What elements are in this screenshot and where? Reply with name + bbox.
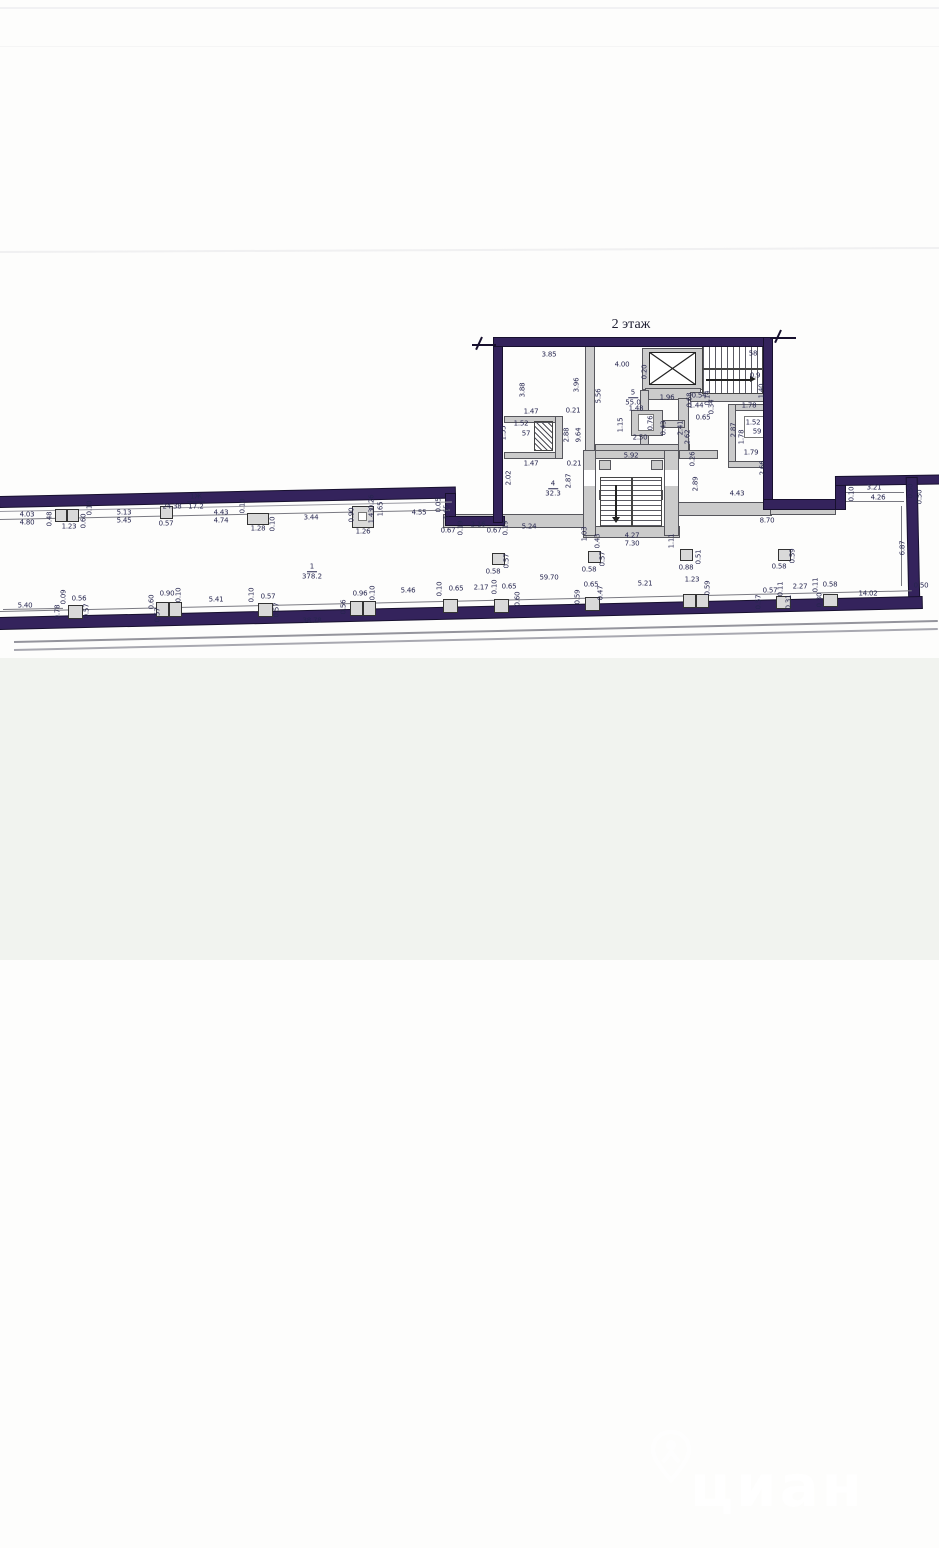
dimension-label: 1.47 xyxy=(524,409,539,416)
cian-watermark: циан xyxy=(618,1428,938,1548)
dimension-label: 5.21 xyxy=(638,581,653,588)
staircase-divider xyxy=(703,368,762,370)
dimension-label: 2.16 xyxy=(471,522,486,529)
dimension-label: 4.00 xyxy=(615,362,630,369)
dimension-label: 1.52 xyxy=(514,421,529,428)
room-number: 4 xyxy=(548,479,558,489)
dimension-label: 2.66 xyxy=(760,461,767,476)
closet-wall xyxy=(504,452,562,459)
elevator-icon xyxy=(649,352,696,385)
dimension-label: 0.09 xyxy=(61,590,68,605)
dimension-label: 0.67 xyxy=(441,528,456,535)
stair-arrow-icon xyxy=(612,517,620,523)
dimension-label: 1.96 xyxy=(660,395,675,402)
dimension-label: 59 xyxy=(753,429,762,436)
dimension-label: 0.43 xyxy=(595,534,602,549)
dimension-label: 0.10 xyxy=(249,588,256,603)
dimension-label: 0.57 xyxy=(756,595,763,610)
column-core xyxy=(358,512,367,521)
dimension-label: 0.57 xyxy=(600,552,607,567)
dimension-label: 0.90 xyxy=(160,591,175,598)
column xyxy=(683,594,696,608)
dimension-label: 0.65 xyxy=(449,586,464,593)
outer-wall-top-right xyxy=(836,476,939,485)
dimension-label: 24.38 xyxy=(162,504,181,511)
dimension-label: 1.26 xyxy=(356,529,371,536)
dimension-label: 0.57 xyxy=(504,554,511,569)
shaft-hatch-icon xyxy=(534,421,553,451)
dimension-label: 0.21 xyxy=(567,461,582,468)
dimension-label: 0.50 xyxy=(908,484,915,499)
dimension-label: 5.40 xyxy=(18,603,33,610)
dimension-label: 0.26 xyxy=(690,452,697,467)
column xyxy=(247,513,269,525)
dimension-label: 38.78 xyxy=(302,618,321,625)
dimension-label: 0.47 xyxy=(598,586,605,601)
dimension-label: 0.21 xyxy=(566,408,581,415)
dimension-label: 0.11 xyxy=(778,582,785,597)
dimension-label: 1.03 xyxy=(582,527,589,542)
dimension-label: 5.13 xyxy=(117,510,132,517)
dimension-label: 1.55 xyxy=(501,426,508,441)
wall-stub xyxy=(651,460,663,470)
dimension-label: 0.58 xyxy=(823,582,838,589)
column xyxy=(494,599,509,613)
dimension-label: 0.58 xyxy=(582,567,597,574)
section-marker xyxy=(770,337,796,339)
dimension-label: 5.92 xyxy=(624,453,639,460)
dimension-label: 0.59 xyxy=(575,590,582,605)
dimension-label: 0.50 xyxy=(917,490,924,505)
dimension-label: 0.88 xyxy=(679,565,694,572)
column xyxy=(443,599,458,613)
dimension-label: 0.90 xyxy=(349,508,356,523)
location-pin-icon xyxy=(648,1428,694,1486)
partition-wall xyxy=(585,346,595,458)
page-background: 2 этаж xyxy=(0,0,939,960)
dimension-label: 1.79 xyxy=(744,450,759,457)
dimension-label: 1.23 xyxy=(685,577,700,584)
column xyxy=(68,605,83,619)
dimension-label: 2.62 xyxy=(685,430,692,445)
room-area: 32.3 xyxy=(545,489,561,497)
column xyxy=(169,602,182,617)
dimension-label: 2.50 xyxy=(633,435,648,442)
dimension-label: 0.10 xyxy=(87,501,94,516)
dimension-label: 0.10 xyxy=(370,586,377,601)
corridor-wall xyxy=(678,502,772,516)
dimension-label: 1.47 xyxy=(524,461,539,468)
dimension-label: 1.48 xyxy=(629,406,644,413)
scan-line xyxy=(0,247,939,253)
dimension-label: 0.10 xyxy=(240,499,247,514)
dimension-label: 0.57 xyxy=(274,603,281,618)
dimension-label: 0.57 xyxy=(763,588,778,595)
dimension-label: 1.15 xyxy=(618,418,625,433)
dimension-label: 0.26 xyxy=(369,495,376,510)
column xyxy=(680,549,693,561)
dimension-label: 9.64 xyxy=(576,428,583,443)
dimension-label: 0.67 xyxy=(487,528,502,535)
room-area: 378.2 xyxy=(302,572,322,580)
stairwell-wall xyxy=(583,450,596,536)
dimension-label: 4.26 xyxy=(871,495,886,502)
scan-line xyxy=(0,7,939,9)
dimension-label: 5.41 xyxy=(209,597,224,604)
room-area: 17.2 xyxy=(187,502,205,510)
dimension-label: 1.23 xyxy=(62,524,77,531)
dimension-label: 0.60 xyxy=(515,592,522,607)
room-label: 555.0 xyxy=(625,388,641,406)
dimension-label: 0.10 xyxy=(437,582,444,597)
dimension-label: 0.43 xyxy=(661,421,668,436)
dimension-label: 58 xyxy=(749,351,758,358)
dimension-label: 0.58 xyxy=(486,569,501,576)
dimension-label: 1.40 xyxy=(759,384,766,399)
room-label: 1Ж17.2 xyxy=(187,492,205,510)
dimension-label: 0.60 xyxy=(81,514,88,529)
stairwell-wall xyxy=(664,450,679,536)
dimension-label: 1.65 xyxy=(444,505,451,520)
dimension-label: 4.55 xyxy=(412,510,427,517)
dimension-label: 7.30 xyxy=(625,541,640,548)
dimension-label: 3.88 xyxy=(520,383,527,398)
dimension-label: 3.44 xyxy=(304,515,319,522)
dimension-label: 1.52 xyxy=(746,420,761,427)
floor-title: 2 этаж xyxy=(612,317,651,333)
column xyxy=(350,601,363,616)
dimension-label: 0.20 xyxy=(642,365,649,380)
room-label: 432.3 xyxy=(545,479,561,497)
column xyxy=(696,594,709,608)
dimension-label: 1.78 xyxy=(742,403,757,410)
dimension-label: 0.11 xyxy=(813,578,820,593)
dimension-label: 0.65 xyxy=(502,584,517,591)
watermark-text: циан xyxy=(690,1452,865,1520)
dimension-label: 0.57 xyxy=(159,521,174,528)
dimension-label: 3.21 xyxy=(867,485,882,492)
dimension-label: 1.78 xyxy=(739,430,746,445)
dimension-label: 0.59 xyxy=(705,581,712,596)
dimension-label: 4.03 xyxy=(20,512,35,519)
dimension-label: 2.88 xyxy=(564,428,571,443)
dimension-label: 0.56 xyxy=(341,600,348,615)
room-number: 1 xyxy=(307,562,317,572)
dimension-label: 0.10 xyxy=(849,487,856,502)
dimension-label: 5.45 xyxy=(117,518,132,525)
dimension-label: 0.19 xyxy=(458,521,465,536)
door-opening xyxy=(584,470,595,486)
lower-page: циан xyxy=(0,658,939,960)
dimension-label: 1.65 xyxy=(378,502,385,517)
stair-arrow-line xyxy=(615,485,617,517)
dimension-label: 0.51 xyxy=(696,550,703,565)
column xyxy=(55,509,67,522)
dimension-label: 4.27 xyxy=(625,533,640,540)
dimension-label: 59.70 xyxy=(539,575,558,582)
room-number: 1Ж xyxy=(187,492,205,502)
column xyxy=(258,603,273,617)
dimension-label: 0.78 xyxy=(55,605,62,620)
dimension-label: 0.57 xyxy=(155,608,162,623)
dimension-label: 4.80 xyxy=(20,520,35,527)
room-number: 5 xyxy=(628,388,638,398)
dimension-label: 3.96 xyxy=(574,378,581,393)
dimension-label: 0.05 xyxy=(436,498,443,513)
dimension-label: 5.24 xyxy=(522,524,537,531)
dimension-label: 0.96 xyxy=(353,591,368,598)
wall-stub xyxy=(599,460,611,470)
dimension-label: 57 xyxy=(522,431,531,438)
dimension-label: 2.02 xyxy=(506,471,513,486)
dimension-label: 0.50 xyxy=(914,583,929,590)
dimension-label: 1.44 xyxy=(689,403,704,410)
wing-wall-bottom xyxy=(764,500,844,509)
partition-wall xyxy=(678,450,718,459)
dimension-label: 2.87 xyxy=(566,474,573,489)
dimension-label: 0.59 xyxy=(790,549,797,564)
room-area: 55.0 xyxy=(625,398,641,406)
dimension-label: 5.56 xyxy=(596,389,603,404)
wing-wall xyxy=(770,509,836,515)
dimension-label: 1.28 xyxy=(251,526,266,533)
dimension-label: 5.46 xyxy=(401,588,416,595)
dimension-label: 1.43 xyxy=(369,509,376,524)
block-wall-right xyxy=(764,338,772,508)
dimension-label: 0.57 xyxy=(84,604,91,619)
dimension-label: 14.02 xyxy=(858,591,877,598)
dimension-label: 0.58 xyxy=(772,564,787,571)
dimension-label: 3.85 xyxy=(542,352,557,359)
scan-line xyxy=(0,46,939,47)
dimension-label: 2.87 xyxy=(731,423,738,438)
dimension-label: 4.43 xyxy=(214,510,229,517)
column xyxy=(67,509,79,522)
stair-arrow-line xyxy=(706,379,750,381)
block-wall-top xyxy=(494,338,772,346)
door-opening xyxy=(665,470,678,486)
dimension-label: 0.57 xyxy=(261,594,276,601)
dimension-label: 1.11 xyxy=(669,534,676,549)
dimension-label: 0.48 xyxy=(47,512,54,527)
dimension-label: 4.43 xyxy=(730,491,745,498)
dimension-label: 0.10 xyxy=(492,580,499,595)
dimension-label: 0.65 xyxy=(696,415,711,422)
dimension-label: 0.10 xyxy=(176,588,183,603)
dimension-label: 2.17 xyxy=(474,585,489,592)
room-label: 1378.2 xyxy=(302,562,322,580)
column xyxy=(363,601,376,616)
dimension-label: 0.56 xyxy=(72,596,87,603)
dimension-label: 2.27 xyxy=(793,584,808,591)
dimension-label: 0.9 xyxy=(750,373,761,380)
dimension-label: 4.74 xyxy=(214,518,229,525)
dimension-label: 8.70 xyxy=(760,518,775,525)
staircase-divider xyxy=(631,478,633,526)
dimension-label: 6.87 xyxy=(900,541,907,556)
dimension-label: 2.89 xyxy=(693,477,700,492)
dimension-label: 0.30 xyxy=(817,593,824,608)
column xyxy=(823,594,838,607)
dimension-label: 0.34 xyxy=(709,400,716,415)
dimension-label: 0.10 xyxy=(270,517,277,532)
dimension-label: 0.76 xyxy=(648,416,655,431)
outer-wall-top-left xyxy=(0,487,455,507)
dimension-label: 0.19 xyxy=(503,521,510,536)
dimension-label: 0.31 xyxy=(786,595,793,610)
